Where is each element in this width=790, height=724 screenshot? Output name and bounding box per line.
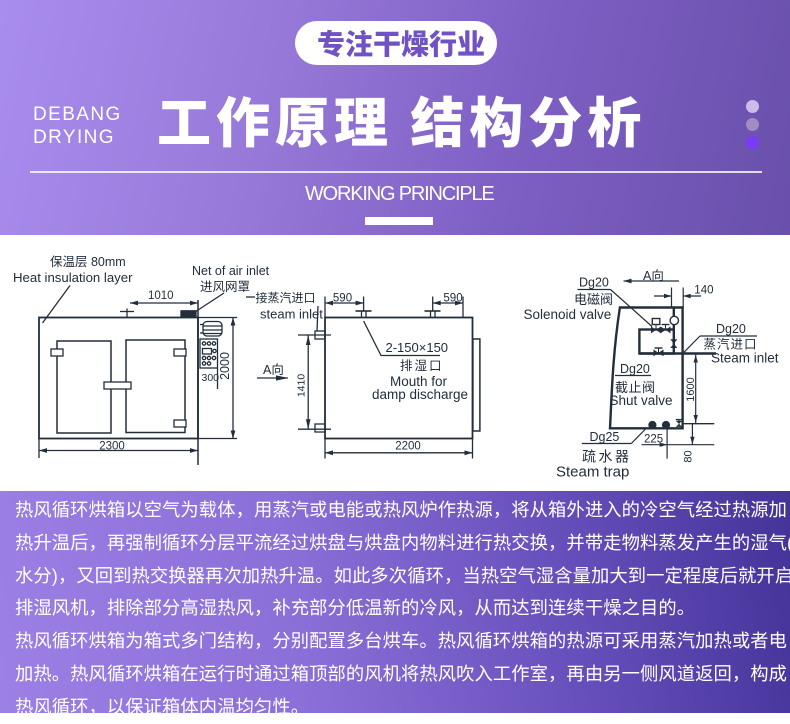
svg-text:1010: 1010 bbox=[148, 290, 174, 302]
svg-text:Heat insulation layer: Heat insulation layer bbox=[13, 270, 133, 285]
svg-text:Net of air inlet: Net of air inlet bbox=[192, 264, 270, 278]
svg-text:蒸汽进口: 蒸汽进口 bbox=[704, 337, 758, 352]
svg-text:300: 300 bbox=[202, 372, 220, 384]
svg-text:steam inlet: steam inlet bbox=[260, 307, 323, 322]
svg-text:damp discharge: damp discharge bbox=[372, 387, 468, 402]
svg-text:80: 80 bbox=[683, 450, 695, 462]
svg-text:2200: 2200 bbox=[395, 441, 421, 453]
svg-text:Dg20: Dg20 bbox=[579, 276, 609, 290]
svg-text:Dg20: Dg20 bbox=[716, 322, 746, 336]
svg-text:1410: 1410 bbox=[296, 374, 308, 398]
svg-text:排湿口: 排湿口 bbox=[400, 358, 444, 373]
svg-text:225: 225 bbox=[644, 434, 663, 446]
svg-text:590: 590 bbox=[443, 293, 462, 305]
svg-text:Solenoid valve: Solenoid valve bbox=[524, 307, 612, 322]
svg-text:2300: 2300 bbox=[99, 441, 125, 453]
svg-text:进风网罩: 进风网罩 bbox=[200, 280, 250, 294]
svg-text:140: 140 bbox=[694, 285, 713, 297]
svg-text:2000: 2000 bbox=[218, 352, 232, 380]
svg-text:保温层 80mm: 保温层 80mm bbox=[50, 255, 126, 269]
svg-text:2-150×150: 2-150×150 bbox=[386, 340, 449, 355]
svg-text:疏水器: 疏水器 bbox=[582, 449, 632, 465]
svg-text:A向: A向 bbox=[643, 268, 664, 283]
svg-text:接蒸汽进口: 接蒸汽进口 bbox=[256, 290, 316, 305]
svg-text:Shut valve: Shut valve bbox=[610, 393, 673, 408]
svg-text:Dg20: Dg20 bbox=[620, 362, 650, 376]
svg-text:Steam trap: Steam trap bbox=[556, 464, 629, 481]
svg-text:A向: A向 bbox=[263, 362, 284, 377]
svg-text:590: 590 bbox=[333, 293, 352, 305]
svg-text:Steam inlet: Steam inlet bbox=[711, 351, 779, 366]
svg-text:Dg25: Dg25 bbox=[590, 430, 620, 444]
svg-text:1600: 1600 bbox=[685, 377, 697, 401]
svg-text:电磁阀: 电磁阀 bbox=[574, 292, 613, 307]
